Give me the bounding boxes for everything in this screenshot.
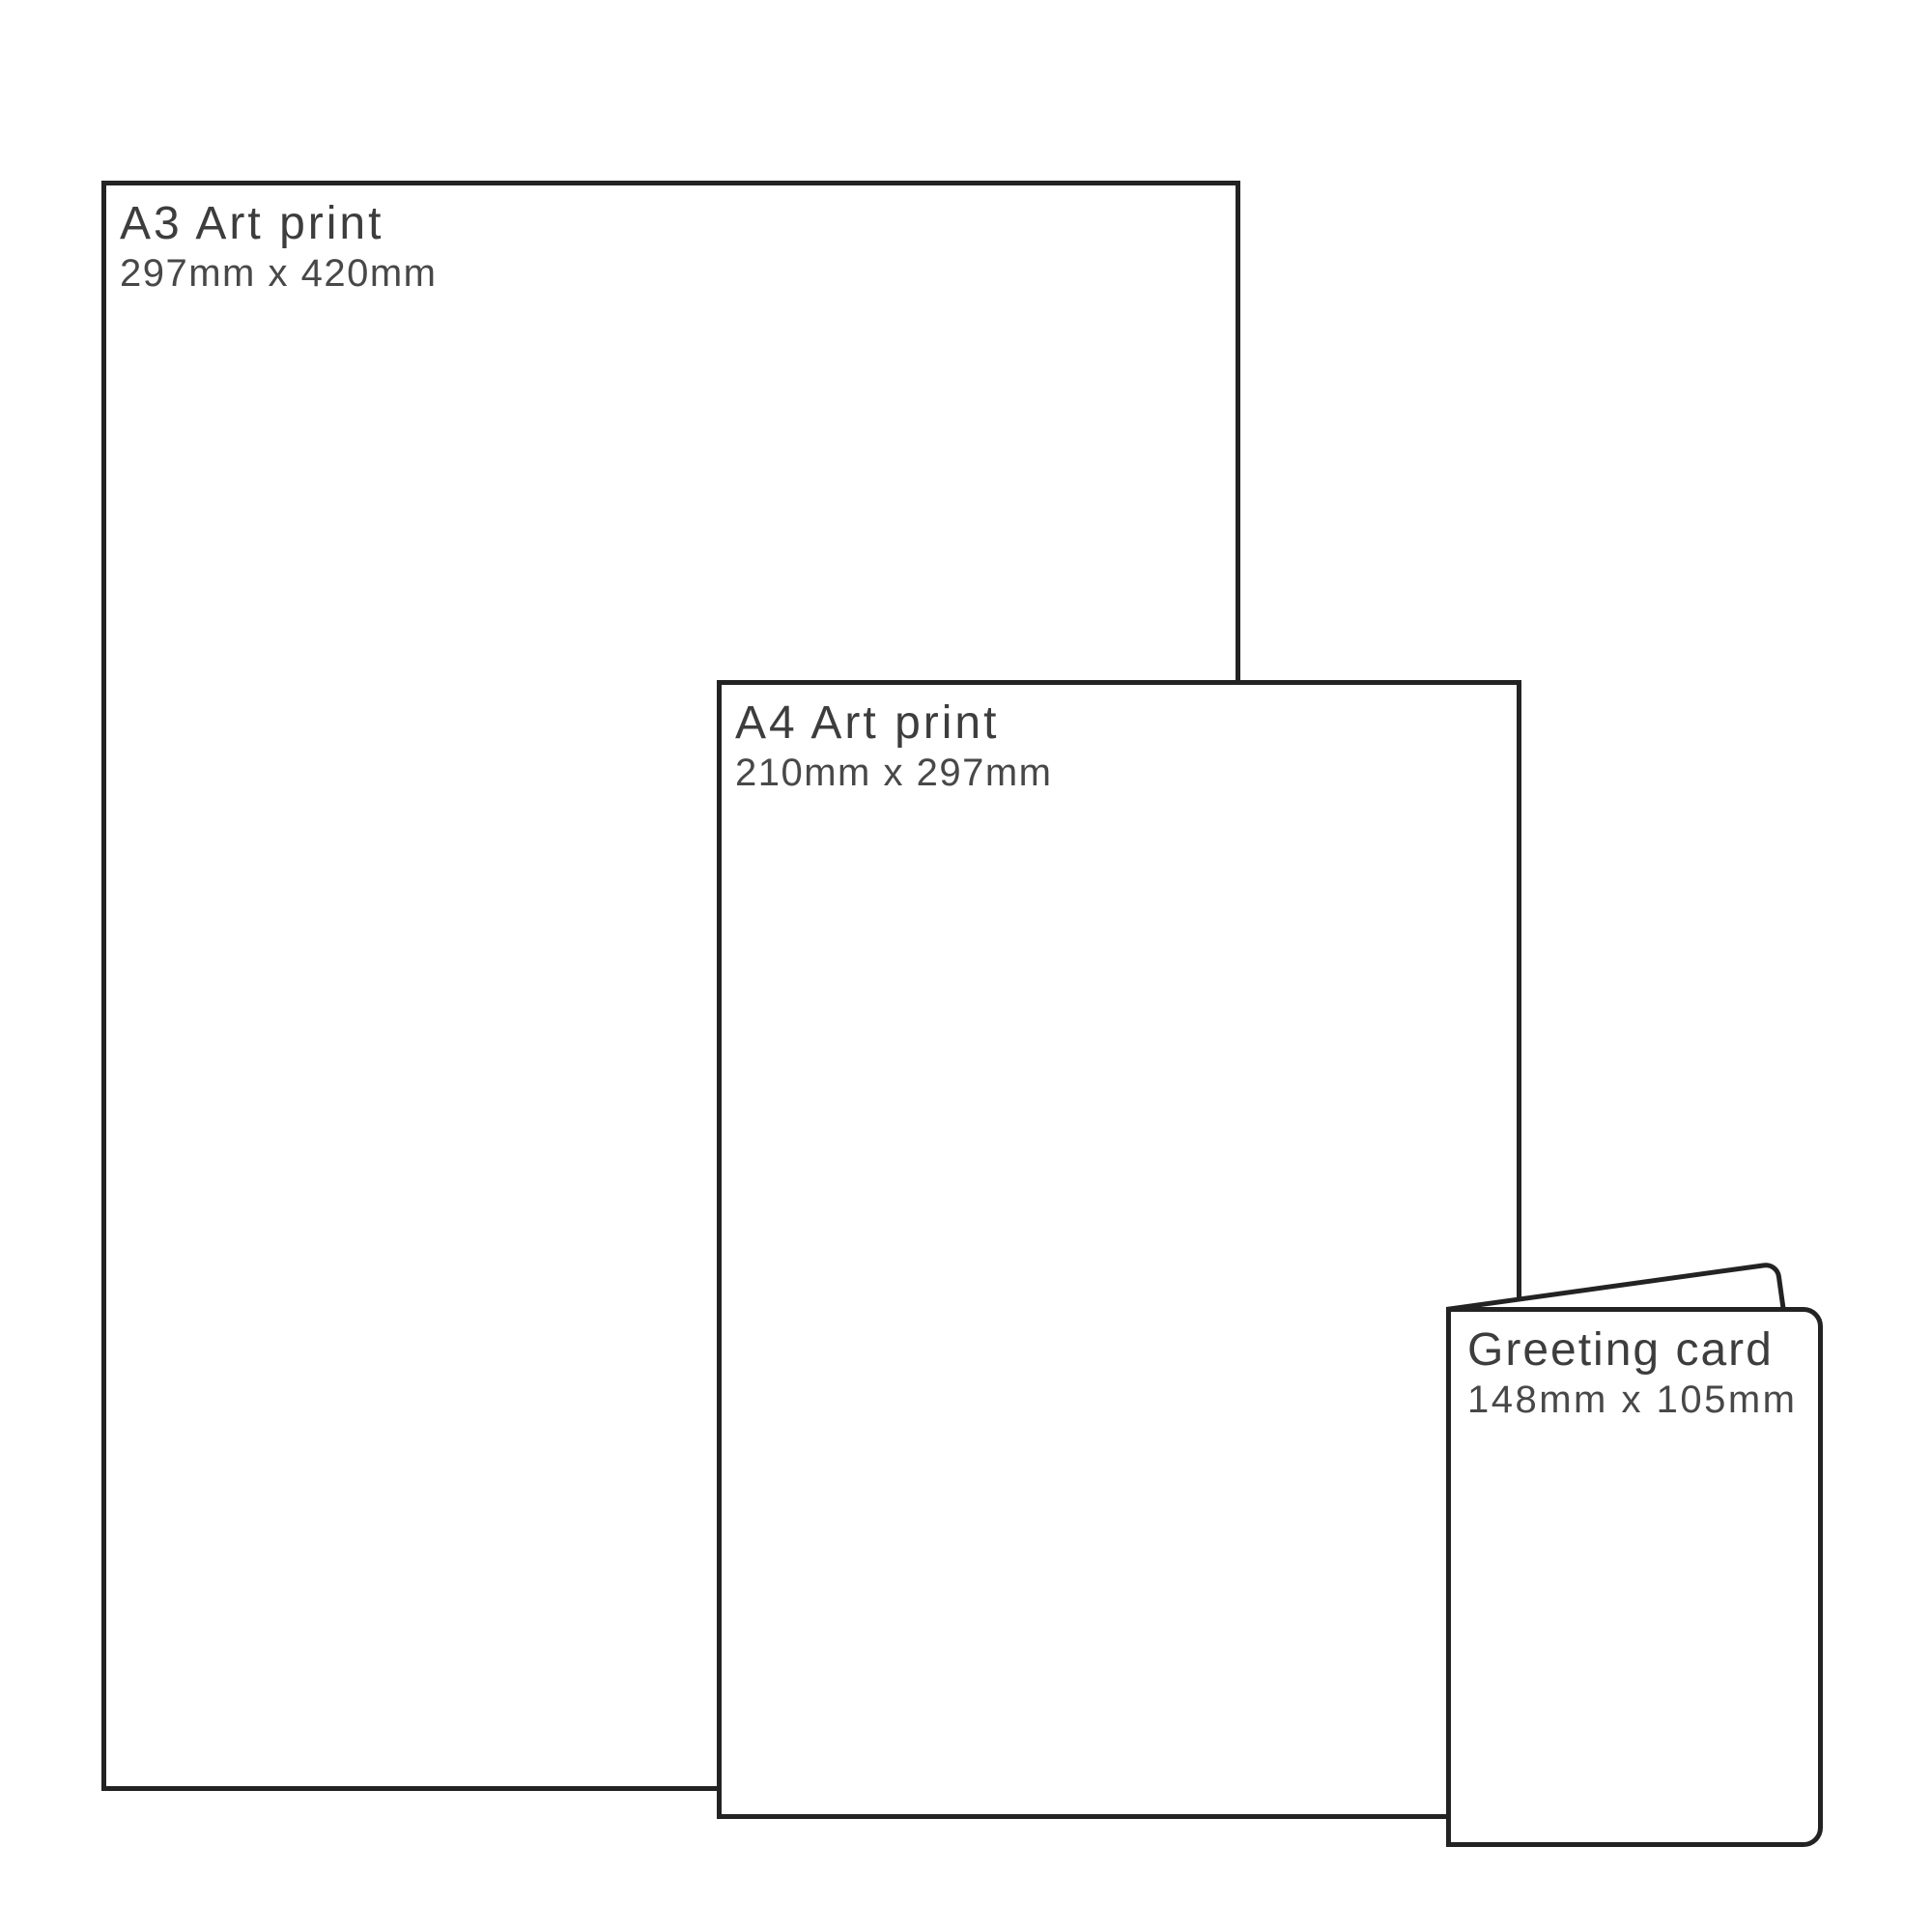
- a3-label: A3 Art print 297mm x 420mm: [106, 185, 1236, 296]
- a4-art-print-outline: A4 Art print 210mm x 297mm: [717, 680, 1521, 1819]
- a3-title: A3 Art print: [120, 197, 1228, 250]
- greeting-card-outline: Greeting card 148mm x 105mm: [1446, 1307, 1823, 1847]
- a3-dimensions: 297mm x 420mm: [120, 252, 1228, 296]
- a4-dimensions: 210mm x 297mm: [735, 752, 1509, 795]
- a4-title: A4 Art print: [735, 696, 1509, 750]
- print-size-comparison-diagram: A3 Art print 297mm x 420mm A4 Art print …: [0, 0, 1932, 1932]
- greeting-card-dimensions: 148mm x 105mm: [1467, 1378, 1814, 1422]
- greeting-card-title: Greeting card: [1467, 1323, 1814, 1377]
- a4-label: A4 Art print 210mm x 297mm: [722, 685, 1517, 795]
- greeting-card-label: Greeting card 148mm x 105mm: [1451, 1312, 1818, 1422]
